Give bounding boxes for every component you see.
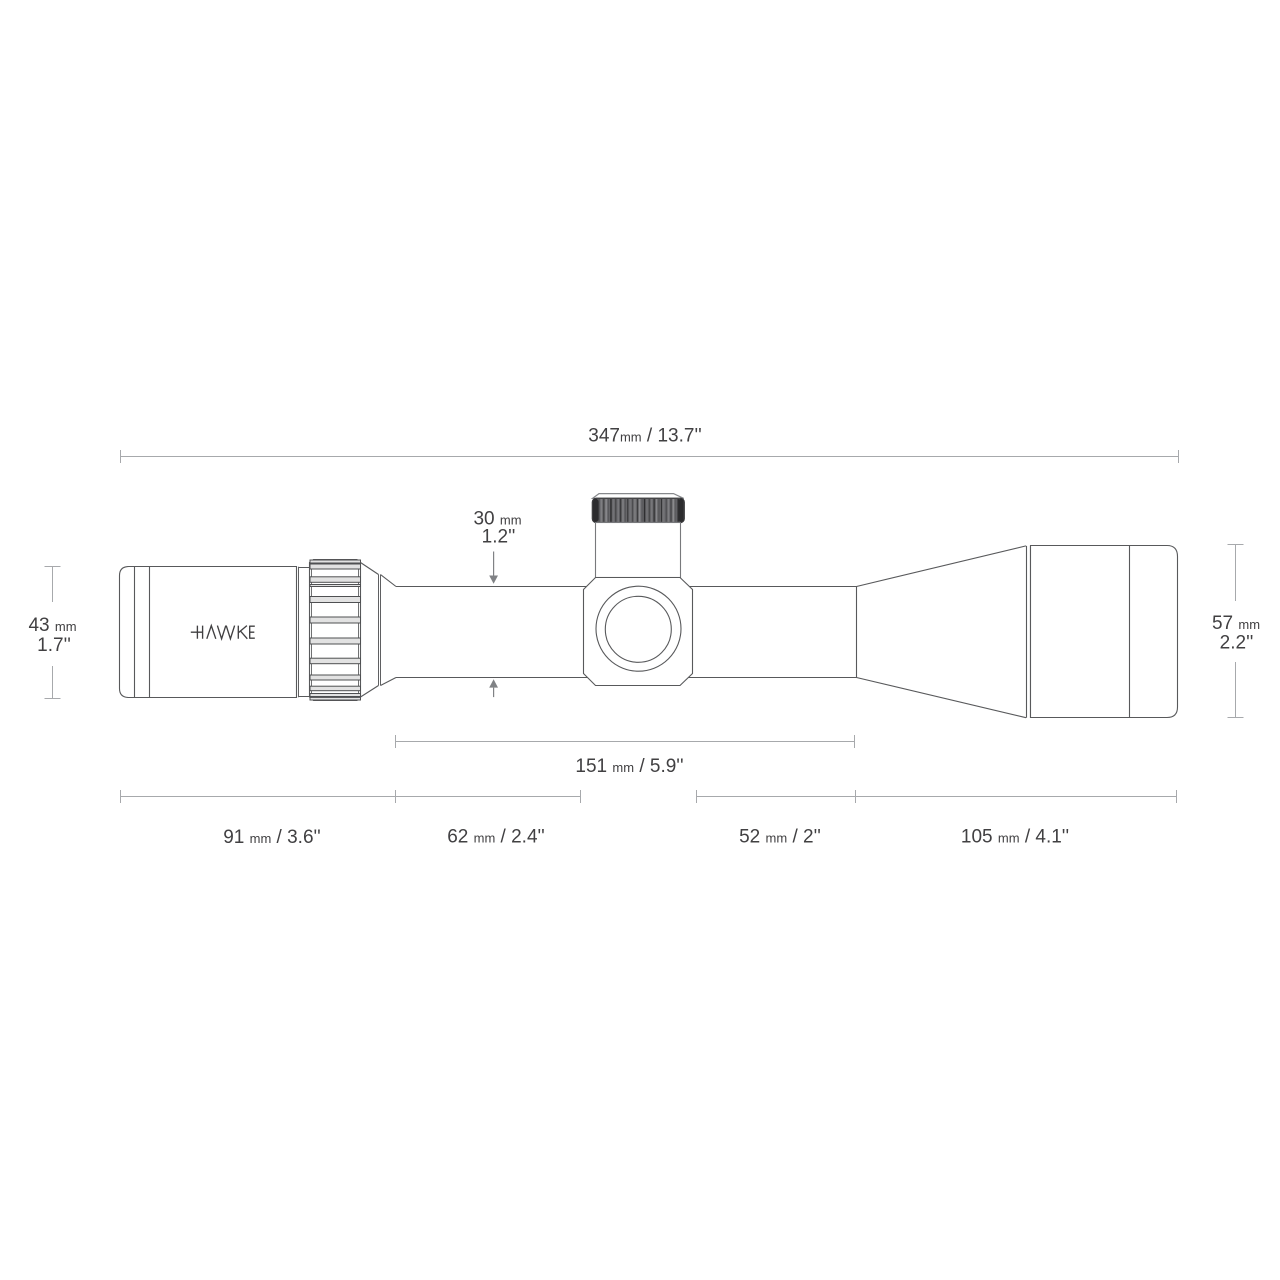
svg-text:347mm / 13.7'': 347mm / 13.7'' — [588, 426, 701, 447]
svg-text:62 mm / 2.4'': 62 mm / 2.4'' — [447, 827, 545, 848]
svg-text:1.7'': 1.7'' — [37, 635, 71, 656]
svg-text:52 mm / 2'': 52 mm / 2'' — [739, 827, 821, 848]
svg-text:57 mm: 57 mm — [1212, 613, 1260, 634]
svg-text:151 mm / 5.9'': 151 mm / 5.9'' — [575, 756, 683, 777]
svg-text:43 mm: 43 mm — [28, 615, 76, 636]
svg-text:1.2'': 1.2'' — [482, 527, 516, 548]
svg-text:91 mm / 3.6'': 91 mm / 3.6'' — [223, 827, 321, 848]
svg-text:105 mm / 4.1'': 105 mm / 4.1'' — [961, 827, 1069, 848]
svg-text:2.2'': 2.2'' — [1220, 633, 1254, 654]
